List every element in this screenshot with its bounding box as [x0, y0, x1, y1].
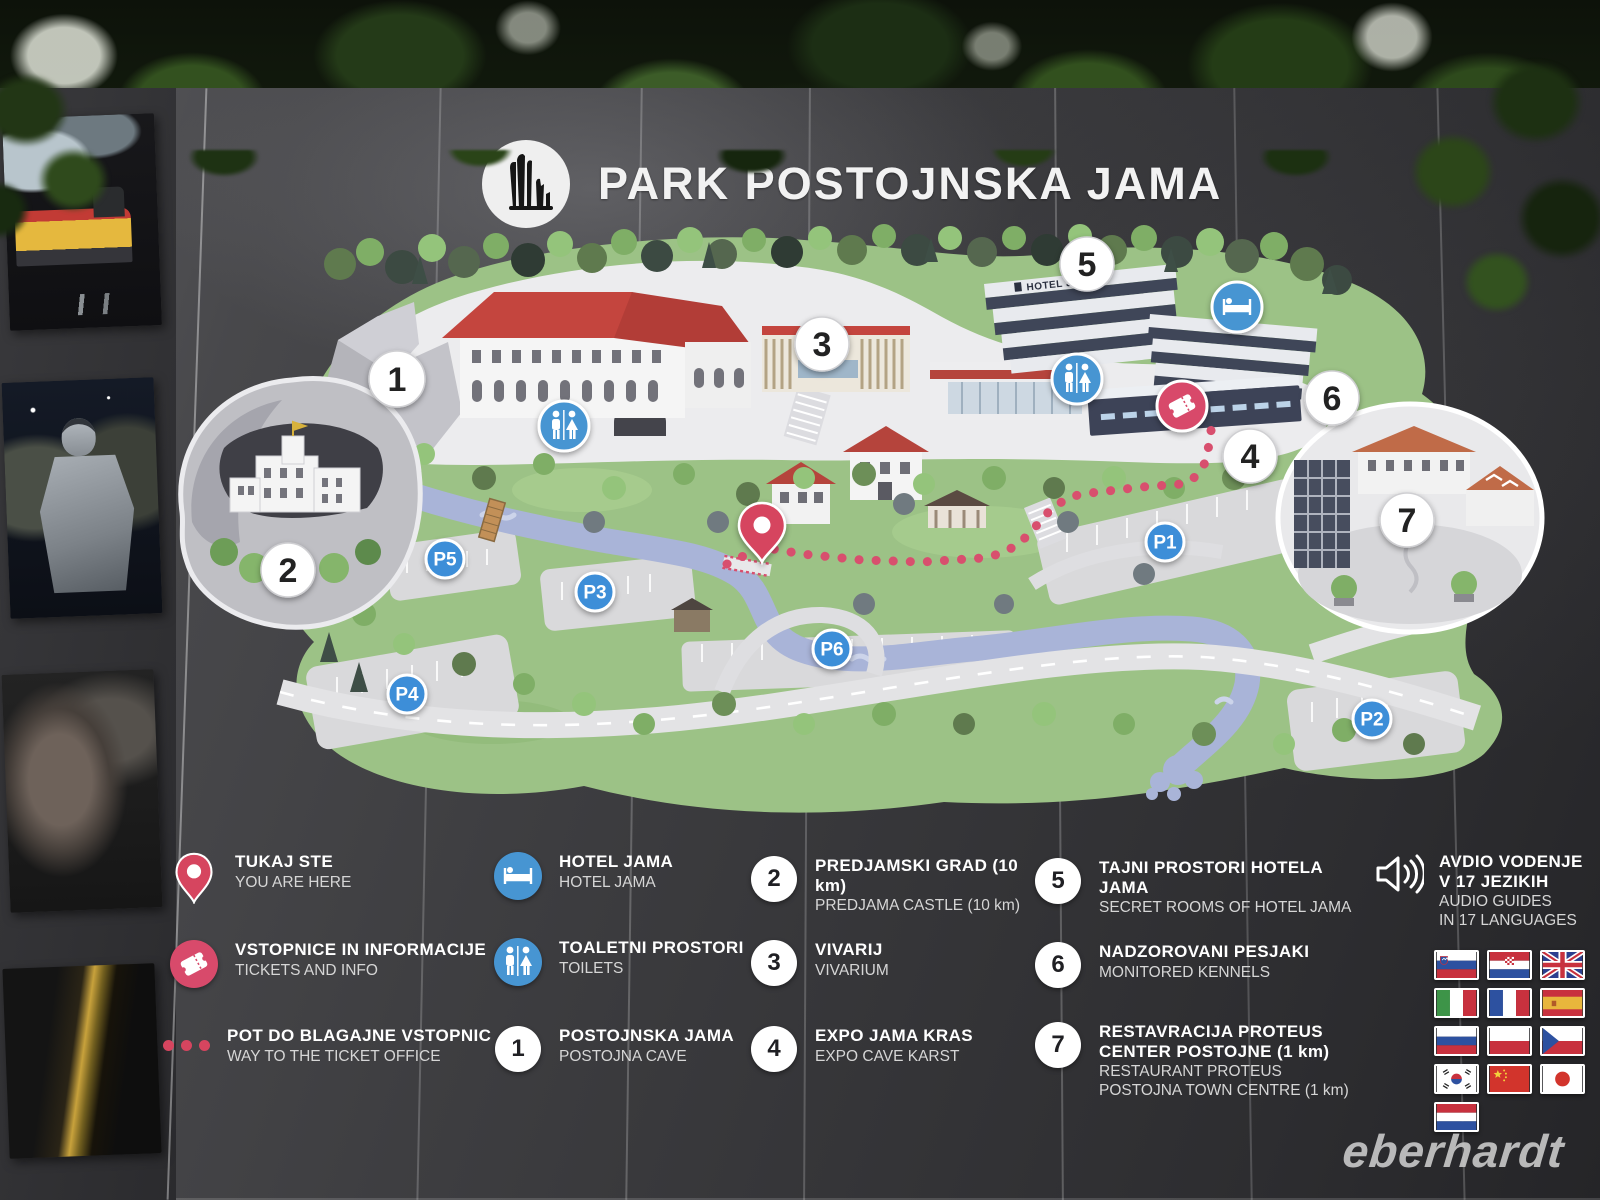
legend-item-vivarium: 3 VIVARIJ VIVARIUM	[748, 940, 1048, 986]
parking-P1: P1	[1146, 523, 1184, 561]
toilets-icon	[1052, 354, 1102, 404]
overhanging-leaves	[1380, 50, 1600, 340]
audio-language-flags	[1434, 950, 1593, 1140]
parking-P3: P3	[576, 573, 614, 611]
svg-text:4: 4	[1241, 438, 1260, 476]
hotel-bed-icon	[1212, 282, 1262, 332]
dotted-path-icon	[160, 1026, 212, 1051]
park-map-illustration: HOTEL JAMA	[162, 222, 1547, 840]
legend-item-toilets: TOALETNI PROSTORI TOILETS	[492, 938, 752, 986]
parking-P4: P4	[388, 675, 426, 713]
legend-item-predjama-castle: 2 PREDJAMSKI GRAD (10 km) PREDJAMA CASTL…	[748, 856, 1048, 916]
map-marker-2: 2	[261, 543, 315, 597]
cave-entrance-building	[442, 292, 751, 418]
legend-number-1: 1	[495, 1026, 541, 1072]
svg-text:2: 2	[279, 552, 298, 590]
photographer-watermark: eberhardt	[1340, 1124, 1567, 1178]
legend-number-4: 4	[751, 1026, 797, 1072]
flag-russia-icon	[1434, 1026, 1479, 1056]
svg-text:7: 7	[1398, 502, 1417, 540]
toilets-icon	[492, 938, 544, 986]
legend-item-way-to-ticket-office: POT DO BLAGAJNE VSTOPNIC WAY TO THE TICK…	[160, 1026, 500, 1066]
svg-text:P4: P4	[395, 685, 419, 706]
map-marker-4: 4	[1223, 429, 1277, 483]
legend-number-5: 5	[1035, 858, 1081, 904]
svg-text:P1: P1	[1153, 533, 1177, 554]
flag-slovenia-icon	[1434, 950, 1479, 980]
legend-item-restaurant-proteus: 7 RESTAVRACIJA PROTEUS CENTER POSTOJNE (…	[1032, 1022, 1372, 1100]
flag-united-kingdom-icon	[1540, 950, 1585, 980]
flag-czech-republic-icon	[1540, 1026, 1585, 1056]
legend-number-3: 3	[751, 940, 797, 986]
legend-item-audio-guides: AVDIO VODENJE V 17 JEZIKIH AUDIO GUIDES …	[1372, 852, 1600, 930]
legend-item-tickets: VSTOPNICE IN INFORMACIJE TICKETS AND INF…	[168, 940, 508, 988]
legend-item-hotel-jama: HOTEL JAMA HOTEL JAMA	[492, 852, 742, 900]
legend-item-you-are-here: TUKAJ STE YOU ARE HERE	[168, 852, 498, 904]
svg-text:P3: P3	[583, 583, 606, 604]
photo-of-park-map-sign: PARK POSTOJNSKA JAMA	[0, 0, 1600, 1200]
svg-text:5: 5	[1078, 246, 1097, 284]
map-marker-1: 1	[369, 351, 425, 407]
map-marker-5: 5	[1060, 237, 1114, 291]
legend-item-monitored-kennels: 6 NADZOROVANI PESJAKI MONITORED KENNELS	[1032, 942, 1362, 988]
flag-italy-icon	[1434, 988, 1479, 1018]
leaf-fringe	[0, 150, 1600, 220]
parking-P5: P5	[426, 540, 464, 578]
portrait-in-dark-photo	[1, 669, 162, 913]
knight-armour-photo	[2, 377, 163, 619]
map-marker-3: 3	[795, 317, 849, 371]
svg-text:3: 3	[813, 326, 832, 364]
flag-japan-icon	[1540, 1064, 1585, 1094]
map-marker-6: 6	[1305, 371, 1359, 425]
overhanging-leaves	[0, 60, 140, 260]
flag-china-icon	[1487, 1064, 1532, 1094]
map-marker-7: 7	[1380, 493, 1434, 547]
parking-P6: P6	[813, 630, 851, 668]
speaker-icon	[1372, 852, 1424, 896]
legend-item-postojna-cave: 1 POSTOJNSKA JAMA POSTOJNA CAVE	[492, 1026, 752, 1072]
flag-south-korea-icon	[1434, 1064, 1479, 1094]
tickets-icon	[168, 940, 220, 988]
tickets-icon	[1157, 381, 1207, 431]
you-are-here-pin-icon	[168, 852, 220, 904]
svg-text:P6: P6	[820, 640, 843, 661]
flag-croatia-icon	[1487, 950, 1532, 980]
flag-france-icon	[1487, 988, 1532, 1018]
legend-item-secret-rooms: 5 TAJNI PROSTORI HOTELA JAMA SECRET ROOM…	[1032, 858, 1362, 918]
cave-lift-photo	[2, 963, 161, 1159]
flag-spain-icon	[1540, 988, 1585, 1018]
legend-number-2: 2	[751, 856, 797, 902]
legend-item-expo-cave-karst: 4 EXPO JAMA KRAS EXPO CAVE KARST	[748, 1026, 1048, 1072]
svg-text:P2: P2	[1360, 710, 1383, 731]
legend-number-7: 7	[1035, 1022, 1081, 1068]
toilets-icon	[539, 401, 589, 451]
svg-text:1: 1	[388, 361, 407, 399]
flag-poland-icon	[1487, 1026, 1532, 1056]
parking-P2: P2	[1353, 700, 1391, 738]
hotel-bed-icon	[492, 852, 544, 900]
svg-text:P5: P5	[433, 550, 457, 571]
svg-text:6: 6	[1323, 380, 1342, 418]
legend-number-6: 6	[1035, 942, 1081, 988]
